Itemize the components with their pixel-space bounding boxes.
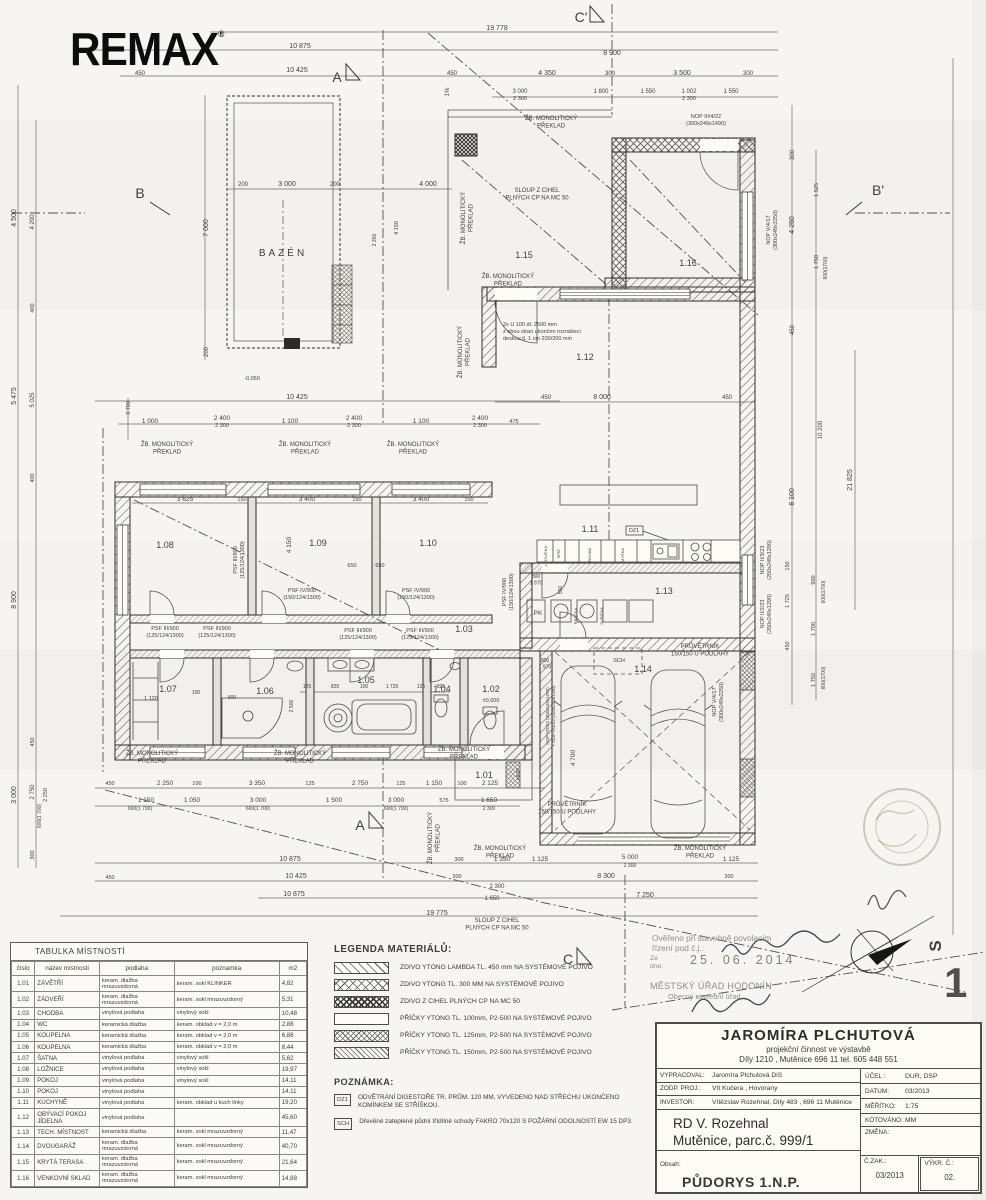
plan-annotation: 450 (541, 395, 552, 401)
table-row: 1.09POKOJvinylová podlahavinylový sokl14… (12, 1075, 307, 1086)
plan-annotation: 300 (724, 874, 733, 880)
plan-annotation: 1 750 (811, 673, 817, 687)
plan-annotation: 1.10 (419, 538, 437, 548)
plan-annotation: 3 000 (278, 181, 296, 188)
legend-title: LEGENDA MATERIÁLŮ: (334, 944, 662, 955)
plan-annotation: 300 (605, 71, 616, 77)
note-tag: DZ1 (334, 1094, 351, 1106)
room-table-title: TABULKA MÍSTNOSTÍ (11, 943, 307, 961)
plan-annotation: 150 (785, 561, 791, 570)
plan-annotation: 1 500 (326, 797, 343, 804)
plan-annotation: 1.01 (475, 770, 493, 780)
plan-annotation: 1 125 (723, 856, 740, 863)
table-row: 1.06KOUPELNAkeramická dlažbakeram. obkla… (12, 1041, 307, 1052)
plan-annotation: 2 300 (682, 96, 696, 102)
plan-annotation: 200 (204, 346, 210, 357)
plan-annotation: 2 300 (489, 884, 505, 890)
table-row: 1.16VENKOVNÍ SKLADkeram. dlažba mrazuvzd… (12, 1170, 307, 1186)
plan-annotation: 900 (811, 575, 817, 584)
plan-annotation: 125 (396, 781, 405, 787)
plan-annotation: 650 (347, 563, 356, 569)
scanned-floor-plan-page: { "logo": {"brand": "REMAX", "reg": "®"}… (0, 0, 986, 1200)
plan-annotation: SLOUP Z CIHELPLNÝCH CP NA MC 50 (465, 918, 529, 932)
plan-annotation: 150 (237, 497, 246, 503)
plan-annotation: 1 350 (494, 856, 511, 863)
plan-annotation: 10 875 (279, 856, 301, 863)
plan-annotation: 125 (305, 781, 314, 787)
plan-annotation: 2 300 (624, 863, 637, 869)
plan-annotation: NOP II/2/23 (200x249x1290)+ NOP II/3/23 … (545, 685, 556, 747)
plan-annotation: SCH (613, 658, 625, 664)
plan-annotation: 1.09 (309, 538, 327, 548)
plan-annotation: 3 700 (126, 401, 132, 415)
plan-annotation: 4 150 (286, 536, 293, 553)
official-seal (864, 789, 940, 865)
table-header-cell: podlaha (99, 962, 174, 976)
plan-annotation: 600(1700) (821, 666, 827, 689)
plan-annotation: 1.02 (482, 684, 500, 694)
table-header-cell: nazev místnosti (35, 962, 100, 976)
plan-annotation: ŽB. MONOLITICKÝPŘEKLAD (141, 440, 193, 456)
plan-annotation: C' (575, 9, 588, 25)
plan-annotation: 600(1 700) (128, 806, 153, 812)
legend-item: ZDIVO Z CIHEL PLNÝCH CP NA MC 50 (334, 993, 662, 1010)
rooms-table-body: 1.01ZÁVĚTŘÍkeram. dlažba mrazuvzdornáker… (12, 976, 307, 1187)
materials-legend: LEGENDA MATERIÁLŮ: ZDIVO YTONG LAMBDA TL… (334, 944, 662, 1130)
legend-item: PŘÍČKY YTONG TL. 150mm, P2-500 NA SYSTÉM… (334, 1044, 662, 1061)
plan-annotation: 1 120 (144, 696, 158, 702)
table-row: 1.11KUCHYNĚvinylová podlahakeram. obklad… (12, 1097, 307, 1108)
plan-annotation: 1 700 (811, 622, 817, 636)
titleblock-meritko: MĚŘÍTKO:1:75 (861, 1099, 980, 1114)
table-row: 1.03CHODBAvinylová podlahavinylový sokl1… (12, 1008, 307, 1019)
plan-annotation: 7 000 (203, 219, 210, 237)
legend-item: ZDIVO YTONG TL. 300 MM NA SYSTÉMOVÉ POJI… (334, 976, 662, 993)
plan-annotation: 400 (30, 303, 36, 312)
plan-annotation: 4 700 (570, 749, 577, 766)
plan-annotation: 1 100 (413, 418, 430, 425)
plan-annotation: 1.07 (159, 684, 177, 694)
drawing-title: PŮDORYS 1.N.P. (682, 1174, 857, 1190)
plan-annotation: 1 150 (426, 780, 443, 787)
titleblock-row-zodp: ZODP. PROJ.:Vít Kučera , Hovorany (657, 1083, 860, 1097)
plan-annotation: PRŮVĚTRNÍK150/150 U PODLAHY (538, 800, 596, 816)
plan-annotation: 5 000 (622, 854, 639, 861)
plan-annotation: 200 (238, 182, 249, 188)
plan-annotation: 450 (722, 395, 733, 401)
plan-annotation: 1% (445, 87, 451, 96)
plan-annotation: PK (534, 610, 543, 617)
plan-annotation: PSF IV/900(150/124/1300) (283, 588, 320, 601)
table-row: 1.04WCkeramická dlažbakeram. obklad v = … (12, 1019, 307, 1030)
remax-logo: REMAX® (70, 26, 223, 72)
plan-annotation: NOP II/2/23(250x249x1290) (760, 594, 773, 634)
approval-stamp-ze-dne: Zedne: (650, 955, 663, 972)
plan-annotation: 300 (790, 149, 796, 160)
plan-annotation: PSF IV/900(150/124/1300) (502, 573, 515, 610)
designer-name: JAROMÍRA PLCHUTOVÁ (657, 1027, 980, 1044)
cross-x-hatch-swatch (334, 979, 389, 991)
plan-annotation: PSF III/900(125/124/1300) (146, 626, 183, 639)
table-row: 1.15KRYTÁ TERASAkeram. dlažba mrazuvzdor… (12, 1154, 307, 1170)
plan-annotation: 600(1700) (821, 580, 827, 603)
plan-annotation: 3 000 (250, 797, 267, 804)
titleblock-row-vypracoval: VYPRACOVAL:Jaromíra Plchutová DiS (657, 1069, 860, 1083)
plan-annotation: 10 200 (818, 420, 824, 439)
plan-annotation: PSF III/900(125/124/1300) (233, 541, 246, 578)
plan-annotation: 1 800 (593, 89, 609, 95)
plan-annotation: 5 025 (30, 392, 36, 408)
plan-annotation: 1.14 (634, 664, 652, 674)
legend-item-label: ZDIVO YTONG TL. 300 MM NA SYSTÉMOVÉ POJI… (400, 981, 564, 988)
plan-annotation: 3 000 (512, 89, 528, 95)
titleblock-czak: Č.ZAK.:03/2013 (861, 1156, 919, 1192)
plan-annotation: 10 425 (285, 873, 307, 880)
plan-annotation: 450 (105, 875, 114, 881)
legend-item-label: PŘÍČKY YTONG TL. 100mm, P2-500 NA SYSTÉM… (400, 1015, 592, 1022)
plan-annotation: 1.08 (156, 540, 174, 550)
plan-annotation: A (355, 817, 365, 833)
plan-annotation: SUŠIČKA (599, 607, 604, 625)
plan-annotation: ±0,000 (483, 698, 500, 704)
table-row: 1.14DVOUGARÁŽkeram. dlažba mrazuvzdornák… (12, 1138, 307, 1154)
plan-annotation: 4 500 (11, 209, 18, 227)
plan-annotation: HUP (516, 768, 522, 780)
diag-fine-hatch-swatch (334, 1047, 389, 1059)
plan-annotation: PSF III/900(125/124/1300) (198, 626, 235, 639)
plan-annotation: 1 100 (282, 418, 299, 425)
approval-stamp-line2: řízení pod č.j.: (652, 943, 704, 953)
plan-annotation: 450 (785, 641, 791, 650)
plan-annotation: PRAČKA (573, 607, 578, 624)
diag-wide-hatch-swatch (334, 962, 389, 974)
plan-annotation: 8 000 (593, 394, 611, 401)
table-row: 1.12OBÝVACÍ POKOJ JÍDELNAvinylová podlah… (12, 1109, 307, 1127)
plan-annotation: 3 000 (11, 786, 18, 804)
table-row: 1.07ŠATNAvinylová podlahavinylový sokl5,… (12, 1053, 307, 1064)
titleblock-row-investor: INVESTOR:Vítězslav Rozehnal, Díly 483 , … (657, 1096, 860, 1110)
plan-annotation: 1 725 (785, 594, 791, 608)
titleblock-zmena: ZMĚNA: (861, 1127, 980, 1156)
approval-stamp-line1: Ověřeno při stavebně povolacím (652, 933, 771, 943)
tech-room (527, 600, 653, 622)
plan-annotation: 450 (105, 781, 114, 787)
plan-annotation: 1 725 (386, 684, 399, 690)
table-header-cell: číslo (12, 962, 35, 976)
note-tag: SCH (334, 1118, 352, 1130)
plan-annotation: NOP V/4/17(300x249x2250) (766, 210, 779, 250)
plan-annotation: 3 400 (299, 496, 316, 503)
plan-annotation: 2 300 (483, 806, 496, 812)
legend-items: ZDIVO YTONG LAMBDA TL. 450 mm NA SYSTÉMO… (334, 959, 662, 1061)
table-row: 1.02ZÁDVEŘÍkeram. dlažba mrazuvzdornáker… (12, 992, 307, 1008)
table-row: 1.01ZÁVĚTŘÍkeram. dlažba mrazuvzdornáker… (12, 976, 307, 992)
page-number: 1 (944, 962, 967, 1004)
legend-notes: DZ1ODVĚTRÁNÍ DIGESTOŘE TR. PRŮM. 120 MM,… (334, 1094, 662, 1130)
plan-annotation: 575 (439, 798, 448, 804)
drawing-content-cell: Obsah: PŮDORYS 1.N.P. (657, 1151, 860, 1192)
designer-subtitle: projekční činnost ve výstavbě (657, 1045, 980, 1054)
room-schedule-table: TABULKA MÍSTNOSTÍ číslonazev místnostipo… (10, 942, 308, 1188)
plan-annotation: 1.15 (515, 250, 533, 260)
legend-item-label: PŘÍČKY YTONG TL. 150mm, P2-500 NA SYSTÉM… (400, 1049, 592, 1056)
legend-item-label: ZDIVO YTONG LAMBDA TL. 450 mm NA SYSTÉMO… (400, 964, 593, 971)
titleblock-vykr: VÝKR. Č.:02. (920, 1157, 979, 1191)
designer-address: Díly 1210 , Mutěnice 696 11 tel. 605 448… (657, 1055, 980, 1064)
table-header-row: číslonazev místnostipodlahapoznamkam2 (12, 962, 307, 976)
plan-annotation: PSF III/900(125/124/1300) (401, 628, 438, 641)
table-header-cell: m2 (279, 962, 306, 976)
plan-annotation: LEDNIČKA (543, 546, 548, 566)
plan-annotation: 3 400 (413, 496, 430, 503)
plan-annotation: 2 400 (472, 415, 489, 422)
plan-annotation: 100 (457, 781, 466, 787)
plan-annotation: 2 750 (30, 784, 36, 800)
plan-annotation: 10 875 (289, 43, 311, 50)
plan-annotation: 150 (464, 497, 473, 503)
plan-annotation: ŽB. MONOLITICKÝPŘEKLAD (279, 440, 331, 456)
plan-annotation: 1 650 (481, 797, 498, 804)
plan-annotation: NOP V/4/17(300x249x2250) (712, 682, 725, 722)
plan-annotation: 825 (331, 684, 340, 690)
plan-annotation: 650 (375, 563, 384, 569)
plan-annotation: 1.16 (679, 258, 697, 268)
plan-annotation: 125 (417, 684, 426, 690)
plan-annotation: 8 900 (11, 591, 18, 609)
plan-annotation: 400 (30, 473, 36, 482)
brick-dense-hatch-swatch (334, 996, 389, 1008)
legend-item: PŘÍČKY YTONG TL. 125mm, P2-500 NA SYSTÉM… (334, 1027, 662, 1044)
plan-annotation: 600(1 700) (384, 806, 409, 812)
legend-item: PŘÍČKY YTONG TL. 100mm, P2-500 NA SYSTÉM… (334, 1010, 662, 1027)
plan-annotation: 2 300 (513, 96, 527, 102)
plan-annotation: 4 150 (394, 221, 400, 235)
plan-annotation: 550 (558, 586, 564, 595)
plan-annotation: MYČKA (620, 548, 625, 563)
plan-annotation: B' (872, 182, 884, 198)
plan-annotation: 2x U 100 dl. 2500 mmz obou stran ukončen… (503, 322, 581, 342)
compass-north-arrow (802, 916, 934, 992)
plan-annotation: 3 000 (388, 797, 405, 804)
plan-annotation: 475 (509, 419, 518, 425)
plan-annotation: PSF III/900(125/124/1300) (339, 628, 376, 641)
plan-annotation: 3 625 (177, 496, 194, 503)
title-block: JAROMÍRA PLCHUTOVÁ projekční činnost ve … (655, 1022, 982, 1194)
plan-annotation: 825 (437, 684, 446, 690)
plan-annotation: 3 500 (673, 70, 691, 77)
plan-annotation: 2 300 (473, 423, 487, 429)
titleblock-datum: DATUM:03/2013 (861, 1084, 980, 1099)
kitchen-counter (537, 485, 740, 562)
plan-annotation: S (926, 940, 945, 951)
plan-annotation: 1.06 (256, 686, 274, 696)
plan-annotation: B (135, 185, 144, 201)
plan-annotation: 100 (192, 781, 201, 787)
plan-annotation: 2 300 (347, 423, 361, 429)
plan-annotation: -0,050 (244, 376, 260, 382)
plan-annotation: 8 100 (789, 488, 796, 506)
legend-item-label: PŘÍČKY YTONG TL. 125mm, P2-500 NA SYSTÉM… (400, 1032, 592, 1039)
plan-annotation: 300 (454, 857, 463, 863)
plan-annotation: ŽB. MONOLITICKÝPŘEKLAD (456, 326, 472, 378)
office-stamp-name: MĚSTSKÝ ÚŘAD HODONÍN (650, 981, 772, 991)
titleblock-kotovano: KÓTOVÁNO:MM (861, 1114, 980, 1127)
plan-annotation: 300 (452, 874, 461, 880)
office-stamp-dept: Obecný stavební úřad (668, 992, 740, 1001)
table-row: 1.05KOUPELNAkeramická dlažbakeram. obkla… (12, 1030, 307, 1041)
plan-annotation: 4 250 (789, 216, 796, 234)
plan-annotation: 8 900 (603, 50, 621, 57)
plan-annotation: 1.13 (655, 586, 673, 596)
plan-annotation: 1 750 (814, 255, 820, 269)
table-row: 1.08LOŽNICEvinylová podlahavinylový sokl… (12, 1064, 307, 1075)
plan-annotation: 450 (447, 71, 458, 77)
note-title: POZNÁMKA: (334, 1077, 662, 1087)
plan-annotation: 1 550 (723, 89, 739, 95)
legend-item-label: ZDIVO Z CIHEL PLNÝCH CP NA MC 50 (400, 998, 520, 1005)
table-row: 1.10POKOJvinylová podlaha14,11 (12, 1086, 307, 1097)
plan-annotation: 1.11 (582, 524, 599, 534)
plan-annotation: 125 (303, 684, 312, 690)
plan-annotation: 2 300 (215, 423, 229, 429)
plan-annotation: 4 200 (30, 214, 36, 230)
plan-annotation: 7 250 (636, 892, 654, 899)
plan-annotation: 600(1700) (823, 256, 829, 279)
plan-annotation: 8 300 (597, 873, 615, 880)
plan-annotation: 450 (30, 737, 36, 746)
plan-annotation: TROUBA (587, 547, 592, 564)
plan-annotation: 21 825 (847, 469, 854, 491)
plan-annotation: 200 (330, 182, 341, 188)
cross-fine-hatch-swatch (334, 1030, 389, 1042)
plan-annotation: 19 775 (426, 910, 448, 917)
plan-annotation: NOP III/4/22(300x249x1490) (686, 114, 726, 127)
plan-annotation: 150 (352, 497, 361, 503)
plan-annotation: 300 (743, 71, 754, 77)
plan-annotation: 4 000 (419, 181, 437, 188)
plan-annotation: 2 400 (214, 415, 231, 422)
plan-annotation: ŽB. MONOLITICKÝPŘEKLAD (387, 440, 439, 456)
plan-annotation: 19 778 (486, 25, 508, 32)
plan-annotation: 1 150 (138, 797, 155, 804)
plan-annotation: 1 002 (681, 89, 697, 95)
plan-annotation: 1.03 (455, 624, 473, 634)
approval-stamp-date: 25. 06. 2014 (690, 953, 796, 967)
plan-annotation: 2 400 (346, 415, 363, 422)
plan-annotation: 1 650 (484, 896, 500, 902)
plan-annotation: 100 (192, 690, 201, 696)
plan-annotation: 10 425 (286, 67, 308, 74)
project-title: RD V. Rozehnal Mutěnice, parc.č. 999/1 (657, 1110, 860, 1151)
plan-annotation: 10 425 (286, 394, 308, 401)
plan-annotation: 10 875 (283, 891, 305, 898)
plan-annotation: PSF IV/900(150/124/1300) (397, 588, 434, 601)
plan-annotation: 2 500 (289, 700, 295, 713)
note-item: DZ1ODVĚTRÁNÍ DIGESTOŘE TR. PRŮM. 120 MM,… (334, 1094, 662, 1111)
plan-annotation: DZ1 (629, 528, 639, 534)
plan-annotation: 2 250 (43, 788, 49, 802)
table-header-cell: poznamka (174, 962, 279, 976)
plan-annotation: NOP II/3/23(250x249x1290) (760, 540, 773, 580)
plan-annotation: 2 750 (352, 780, 369, 787)
plan-annotation: 600(1 700) (246, 806, 271, 812)
plan-annotation: ŽB. MONOLITICKÝPŘEKLAD (426, 812, 442, 864)
plan-annotation: ŽB. MONOLITICKÝPŘEKLAD (674, 844, 726, 860)
plan-annotation: SPÍŽ (556, 549, 561, 558)
note-text: ODVĚTRÁNÍ DIGESTOŘE TR. PRŮM. 120 MM, VY… (358, 1094, 644, 1111)
note-text: Dřevěné zateplené půdní třídílné schody … (359, 1118, 645, 1130)
plan-annotation: 300 (30, 850, 36, 859)
plain-hatch-swatch (334, 1013, 389, 1025)
table-row: 1.13TECH. MÍSTNOSTkeramická dlažbakeram.… (12, 1127, 307, 1138)
plan-annotation: 2 350 (372, 234, 378, 247)
plan-annotation: 2 125 (482, 780, 499, 787)
plan-annotation: 1.12 (576, 352, 594, 362)
plan-annotation: A (332, 69, 342, 85)
plan-annotation: 4 350 (538, 70, 556, 77)
plan-annotation: 3 350 (249, 780, 266, 787)
plan-annotation: 500 (228, 695, 237, 701)
plan-annotation: 1 050 (184, 797, 201, 804)
plan-annotation: 600(1 700) (37, 804, 43, 829)
plan-annotation: 1 525 (814, 183, 820, 197)
plan-annotation: 2 250 (157, 780, 174, 787)
note-item: SCHDřevěné zateplené půdní třídílné scho… (334, 1118, 662, 1130)
plan-annotation: 1 125 (532, 856, 549, 863)
plan-annotation: 450 (790, 324, 796, 335)
legend-item: ZDIVO YTONG LAMBDA TL. 450 mm NA SYSTÉMO… (334, 959, 662, 976)
plan-annotation: 5 475 (11, 387, 18, 405)
titleblock-ucel: ÚČEL :DUR, DSP (861, 1069, 980, 1084)
plan-annotation: 100 (360, 684, 369, 690)
plan-annotation: 1 550 (640, 89, 656, 95)
registered-mark: ® (218, 29, 223, 39)
plan-annotation: 1 000 (142, 418, 159, 425)
plan-annotation: BAZÉN (259, 246, 307, 259)
